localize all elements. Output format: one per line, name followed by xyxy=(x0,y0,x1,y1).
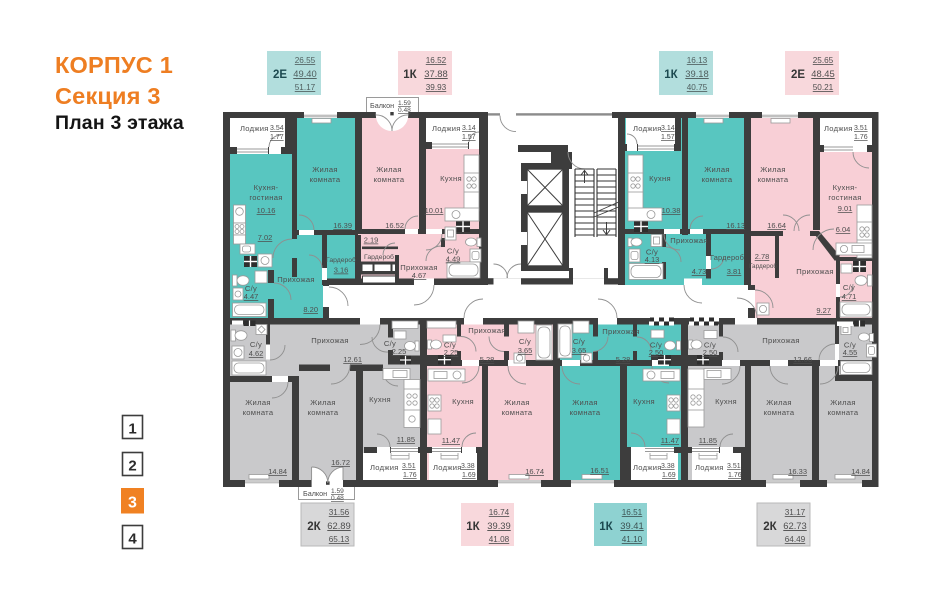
svg-text:3.51: 3.51 xyxy=(727,463,741,470)
svg-text:План 3 этажа: План 3 этажа xyxy=(55,112,184,134)
svg-text:31.56: 31.56 xyxy=(329,508,350,517)
svg-text:3.14: 3.14 xyxy=(661,125,675,132)
svg-text:3.51: 3.51 xyxy=(402,463,416,470)
svg-text:3.38: 3.38 xyxy=(461,463,475,470)
svg-text:16.51: 16.51 xyxy=(590,466,609,475)
svg-text:Лоджия: Лоджия xyxy=(695,463,724,472)
svg-text:Жилая: Жилая xyxy=(704,165,730,174)
svg-text:комната: комната xyxy=(310,175,341,184)
svg-text:комната: комната xyxy=(243,408,274,417)
svg-text:1.59: 1.59 xyxy=(398,100,411,107)
svg-text:комната: комната xyxy=(502,408,533,417)
svg-text:4.67: 4.67 xyxy=(412,271,427,280)
svg-text:4.49: 4.49 xyxy=(446,255,461,264)
svg-text:Прихожая: Прихожая xyxy=(796,267,834,276)
svg-text:Кухня: Кухня xyxy=(633,397,655,406)
svg-text:2Е: 2Е xyxy=(273,69,287,81)
svg-text:Лоджия: Лоджия xyxy=(633,463,662,472)
svg-text:Лоджия: Лоджия xyxy=(433,463,462,472)
svg-text:3.14: 3.14 xyxy=(462,125,476,132)
svg-text:16.52: 16.52 xyxy=(385,221,404,230)
svg-text:Лоджия: Лоджия xyxy=(824,124,853,133)
svg-text:Прихожая: Прихожая xyxy=(670,236,708,245)
svg-text:Лоджия: Лоджия xyxy=(370,463,399,472)
svg-text:комната: комната xyxy=(702,175,733,184)
svg-text:1.69: 1.69 xyxy=(462,472,476,479)
svg-text:КОРПУС 1: КОРПУС 1 xyxy=(55,52,173,78)
svg-text:16.13: 16.13 xyxy=(687,56,708,65)
svg-text:Балкон: Балкон xyxy=(303,489,327,498)
svg-text:С/у: С/у xyxy=(250,340,262,349)
svg-text:39.18: 39.18 xyxy=(685,68,708,79)
svg-text:3.65: 3.65 xyxy=(518,346,533,355)
svg-text:2.50: 2.50 xyxy=(649,348,664,357)
svg-text:1К: 1К xyxy=(403,69,417,81)
svg-text:9.27: 9.27 xyxy=(816,306,831,315)
svg-text:11.85: 11.85 xyxy=(397,435,415,444)
svg-text:Прихожая: Прихожая xyxy=(277,275,315,284)
svg-text:2.50: 2.50 xyxy=(703,348,718,357)
svg-text:5.28: 5.28 xyxy=(616,355,631,364)
svg-text:11.85: 11.85 xyxy=(699,436,717,445)
svg-text:С/у: С/у xyxy=(843,283,855,292)
svg-text:6.04: 6.04 xyxy=(836,225,851,234)
svg-text:Балкон: Балкон xyxy=(370,101,394,110)
svg-text:4.62: 4.62 xyxy=(249,349,264,358)
svg-text:51.17: 51.17 xyxy=(295,83,316,92)
svg-text:Кухня: Кухня xyxy=(369,395,391,404)
svg-text:2.78: 2.78 xyxy=(755,252,770,261)
svg-text:гостиная: гостиная xyxy=(828,193,861,202)
svg-text:16.64: 16.64 xyxy=(767,221,786,230)
svg-text:39.41: 39.41 xyxy=(620,520,643,531)
svg-text:14.84: 14.84 xyxy=(268,467,287,476)
svg-text:12.66: 12.66 xyxy=(793,355,812,364)
svg-text:2К: 2К xyxy=(763,521,777,533)
svg-text:Кухня: Кухня xyxy=(440,174,462,183)
svg-text:Жилая: Жилая xyxy=(760,165,786,174)
svg-text:Прихожая: Прихожая xyxy=(602,327,640,336)
svg-text:С/у: С/у xyxy=(573,337,585,346)
svg-text:40.75: 40.75 xyxy=(687,83,708,92)
svg-text:9.01: 9.01 xyxy=(838,204,853,213)
svg-text:1: 1 xyxy=(128,421,136,438)
svg-text:4: 4 xyxy=(128,531,137,548)
svg-text:комната: комната xyxy=(758,175,789,184)
svg-text:3.16: 3.16 xyxy=(334,266,349,275)
svg-text:Лоджия: Лоджия xyxy=(240,124,269,133)
svg-text:31.17: 31.17 xyxy=(785,508,806,517)
svg-text:10.01: 10.01 xyxy=(425,206,444,215)
svg-text:С/у: С/у xyxy=(519,337,531,346)
svg-text:5.28: 5.28 xyxy=(480,355,495,364)
svg-text:3.38: 3.38 xyxy=(661,463,675,470)
svg-text:3.54: 3.54 xyxy=(270,125,284,132)
svg-text:Гардероб: Гардероб xyxy=(364,253,394,261)
svg-text:3: 3 xyxy=(128,495,137,512)
svg-text:3.51: 3.51 xyxy=(854,125,868,132)
svg-text:0.48: 0.48 xyxy=(331,495,344,502)
svg-text:Гардероб: Гардероб xyxy=(749,262,777,270)
svg-text:1.57: 1.57 xyxy=(661,134,675,141)
svg-text:Гардероб: Гардероб xyxy=(710,253,744,262)
svg-text:16.39: 16.39 xyxy=(333,221,352,230)
svg-text:2.25: 2.25 xyxy=(392,347,407,356)
svg-text:Кухня-: Кухня- xyxy=(254,183,279,192)
svg-text:2.25: 2.25 xyxy=(444,348,459,357)
svg-text:Жилая: Жилая xyxy=(312,165,338,174)
svg-text:4.13: 4.13 xyxy=(645,255,660,264)
svg-text:11.47: 11.47 xyxy=(442,436,460,445)
svg-text:16.74: 16.74 xyxy=(525,467,544,476)
svg-text:2Е: 2Е xyxy=(791,69,805,81)
svg-text:Лоджия: Лоджия xyxy=(432,124,461,133)
svg-text:Жилая: Жилая xyxy=(504,398,530,407)
svg-text:1.59: 1.59 xyxy=(331,488,344,495)
svg-text:41.10: 41.10 xyxy=(622,535,643,544)
svg-text:Секция 3: Секция 3 xyxy=(55,83,161,109)
svg-text:комната: комната xyxy=(308,408,339,417)
svg-text:1К: 1К xyxy=(599,521,613,533)
svg-text:26.55: 26.55 xyxy=(295,56,316,65)
svg-text:Прихожая: Прихожая xyxy=(468,326,506,335)
svg-text:комната: комната xyxy=(828,408,859,417)
svg-text:4.47: 4.47 xyxy=(244,292,259,301)
svg-text:65.13: 65.13 xyxy=(329,535,350,544)
svg-text:Жилая: Жилая xyxy=(245,398,271,407)
svg-text:комната: комната xyxy=(764,408,795,417)
svg-text:1К: 1К xyxy=(664,69,678,81)
svg-text:Гардероб: Гардероб xyxy=(326,256,356,264)
svg-text:62.73: 62.73 xyxy=(783,520,806,531)
svg-text:1.69: 1.69 xyxy=(662,472,676,479)
svg-text:Кухня-: Кухня- xyxy=(833,183,858,192)
svg-text:8.20: 8.20 xyxy=(303,305,318,314)
svg-text:48.45: 48.45 xyxy=(811,68,834,79)
svg-text:2: 2 xyxy=(128,458,136,475)
svg-text:4.73: 4.73 xyxy=(692,267,707,276)
svg-text:1.76: 1.76 xyxy=(403,472,417,479)
svg-text:4.71: 4.71 xyxy=(842,292,857,301)
svg-text:16.72: 16.72 xyxy=(331,458,350,467)
svg-text:16.13: 16.13 xyxy=(726,221,745,230)
svg-text:3.65: 3.65 xyxy=(572,346,587,355)
svg-text:Кухня: Кухня xyxy=(715,397,737,406)
svg-text:1К: 1К xyxy=(466,521,480,533)
svg-text:25.65: 25.65 xyxy=(813,56,834,65)
svg-text:10.38: 10.38 xyxy=(662,206,681,215)
svg-text:0.48: 0.48 xyxy=(398,107,411,114)
svg-text:Кухня: Кухня xyxy=(452,397,474,406)
svg-text:Жилая: Жилая xyxy=(572,398,598,407)
svg-text:1.76: 1.76 xyxy=(728,472,742,479)
svg-text:Жилая: Жилая xyxy=(766,398,792,407)
svg-text:10.16: 10.16 xyxy=(257,206,276,215)
svg-text:16.74: 16.74 xyxy=(489,508,510,517)
svg-text:2К: 2К xyxy=(307,521,321,533)
svg-text:11.47: 11.47 xyxy=(661,436,679,445)
svg-text:Жилая: Жилая xyxy=(830,398,856,407)
svg-text:37.88: 37.88 xyxy=(424,68,447,79)
svg-text:12.61: 12.61 xyxy=(343,355,362,364)
svg-text:4.55: 4.55 xyxy=(843,348,858,357)
svg-text:16.33: 16.33 xyxy=(788,467,807,476)
svg-text:Прихожая: Прихожая xyxy=(762,336,800,345)
svg-text:14.84: 14.84 xyxy=(851,467,870,476)
svg-text:комната: комната xyxy=(374,175,405,184)
svg-text:62.89: 62.89 xyxy=(327,520,350,531)
svg-text:7.02: 7.02 xyxy=(258,233,273,242)
svg-text:2.19: 2.19 xyxy=(364,236,379,245)
svg-text:гостиная: гостиная xyxy=(249,193,282,202)
svg-text:49.40: 49.40 xyxy=(293,68,316,79)
svg-text:1.76: 1.76 xyxy=(854,134,868,141)
svg-text:Прихожая: Прихожая xyxy=(311,336,349,345)
svg-text:39.39: 39.39 xyxy=(487,520,510,531)
svg-text:50.21: 50.21 xyxy=(813,83,834,92)
svg-text:комната: комната xyxy=(570,408,601,417)
svg-text:16.51: 16.51 xyxy=(622,508,643,517)
svg-text:Жилая: Жилая xyxy=(376,165,402,174)
svg-text:Лоджия: Лоджия xyxy=(633,124,662,133)
svg-text:1.57: 1.57 xyxy=(462,134,476,141)
svg-text:41.08: 41.08 xyxy=(489,535,510,544)
svg-text:3.81: 3.81 xyxy=(727,267,742,276)
svg-text:64.49: 64.49 xyxy=(785,535,806,544)
svg-text:Кухня: Кухня xyxy=(649,174,671,183)
svg-text:1.77: 1.77 xyxy=(270,134,284,141)
svg-text:16.52: 16.52 xyxy=(426,56,447,65)
svg-text:39.93: 39.93 xyxy=(426,83,447,92)
svg-text:Жилая: Жилая xyxy=(310,398,336,407)
